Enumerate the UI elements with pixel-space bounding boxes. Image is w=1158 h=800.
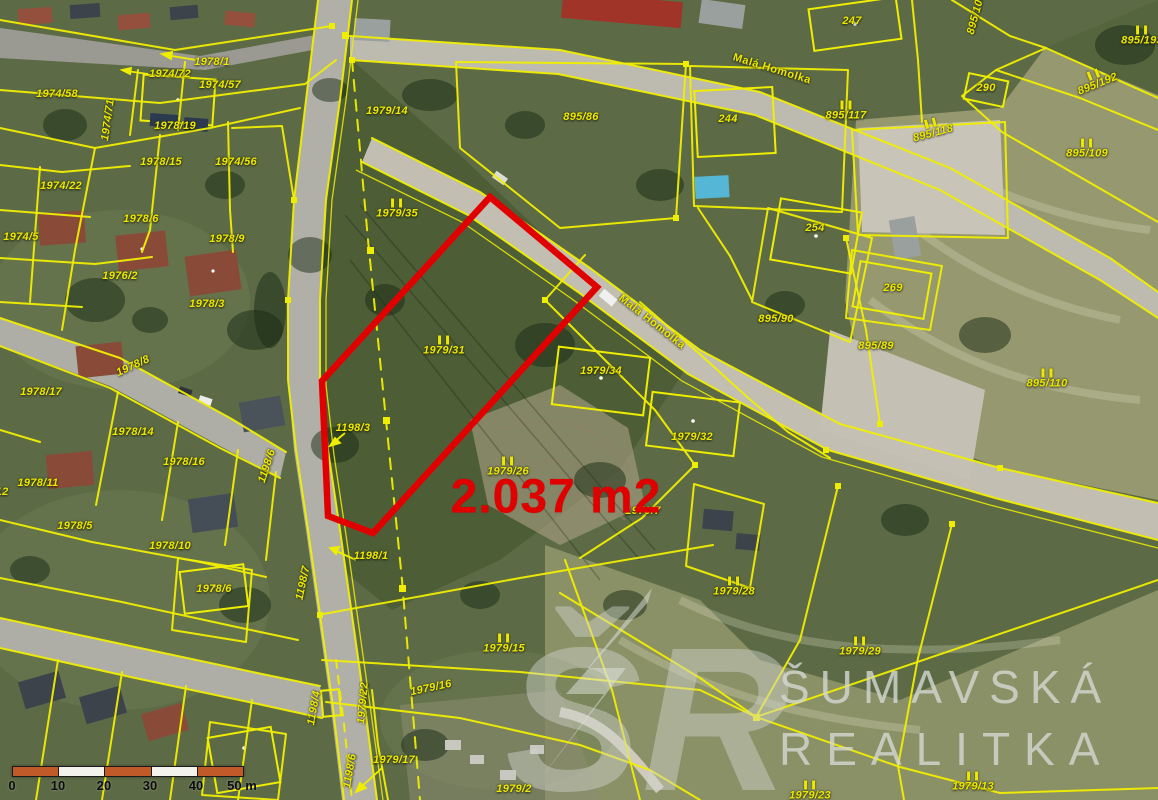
parcel-number: 244	[718, 113, 737, 125]
parcel-number: 1974/22	[40, 180, 82, 192]
parcel-number: 1978/5	[57, 520, 92, 532]
parcel-label: 1979/29	[839, 637, 881, 658]
parcel-label: 1978/14	[112, 426, 154, 438]
scale-tick-label: 40	[189, 778, 203, 793]
parcel-label: 1978/19	[154, 120, 196, 132]
parcel-number: Malá Homolka	[616, 292, 687, 351]
plot-area-label: 2.037 m2	[451, 470, 662, 525]
parcel-label: 1978/15	[140, 156, 182, 168]
parcel-label: 895/106	[965, 0, 987, 36]
parcel-number: 1979/2	[496, 783, 531, 795]
parcel-label: 1197/12	[0, 486, 9, 498]
parcel-label: 1974/5	[3, 231, 38, 243]
parcel-number: 1978/3	[189, 298, 224, 310]
parcel-number: Malá Homolka	[731, 51, 812, 86]
watermark-line1: ŠUMAVSKÁ	[779, 660, 1111, 714]
parcel-number: 1979/16	[409, 678, 452, 698]
parcel-number: 1197/12	[0, 486, 9, 498]
parcel-number: 1974/5	[3, 231, 38, 243]
parcel-number: 895/117	[825, 110, 866, 122]
parcel-label: 1198/1	[354, 550, 389, 562]
parcel-number: 1198/6	[341, 753, 359, 789]
scale-tick-label: 50 m	[227, 778, 257, 793]
parcel-label: 1978/8	[114, 353, 151, 379]
parcel-number: 1976/2	[102, 270, 137, 282]
parcel-number: 290	[976, 82, 995, 94]
scale-segment	[198, 767, 243, 776]
parcel-label: 895/109	[1066, 139, 1108, 160]
parcel-label: 1974/22	[40, 180, 82, 192]
parcel-number: 1979/35	[376, 208, 418, 220]
parcel-number: 1198/6	[256, 448, 278, 485]
parcel-label: 1978/17	[20, 386, 62, 398]
parcel-label: 1979/22	[355, 682, 371, 725]
parcel-number: 1979/34	[580, 365, 622, 377]
parcel-number: 1974/71	[99, 98, 117, 141]
parcel-label: 895/90	[758, 313, 793, 325]
parcel-number: 1198/1	[354, 550, 389, 562]
parcel-number: 1978/19	[154, 120, 196, 132]
parcel-number: 1979/29	[839, 646, 881, 658]
parcel-number: 1979/14	[366, 105, 408, 117]
watermark-line2: REALITKA	[779, 722, 1113, 776]
parcel-label: 1978/1	[194, 56, 229, 68]
parcel-label: 1978/11	[17, 477, 58, 489]
parcel-number: 895/106	[965, 0, 987, 36]
parcel-label: 895/192	[1073, 62, 1120, 97]
parcel-label: 1979/31	[423, 336, 465, 357]
parcel-label: 269	[883, 282, 902, 294]
scale-tick-label: 0	[8, 778, 15, 793]
parcel-number: 1979/31	[423, 345, 465, 357]
parcel-number: 1978/6	[123, 213, 158, 225]
parcel-number: 1974/57	[199, 79, 241, 91]
parcel-number: 1978/17	[20, 386, 62, 398]
parcel-label: 1974/58	[36, 88, 78, 100]
parcel-number: 1979/23	[789, 790, 831, 800]
parcel-label: 1979/15	[483, 634, 525, 655]
parcel-label: 1198/4	[305, 690, 323, 726]
parcel-number: 895/109	[1066, 148, 1108, 160]
parcel-number: 1978/11	[17, 477, 58, 489]
parcel-label: 1978/10	[149, 540, 191, 552]
scale-segment	[59, 767, 105, 776]
parcel-label: 1978/9	[209, 233, 244, 245]
parcel-label: 895/117	[825, 101, 866, 122]
parcel-number: 895/90	[758, 313, 793, 325]
scale-tick-label: 20	[97, 778, 111, 793]
parcel-label: 1974/56	[215, 156, 257, 168]
parcel-number: 1198/3	[336, 422, 371, 434]
parcel-number: 1974/58	[36, 88, 78, 100]
parcel-number: 1974/72	[149, 68, 191, 80]
parcel-number: 1978/9	[209, 233, 244, 245]
scale-tick-label: 30	[143, 778, 157, 793]
parcel-label: 1979/28	[713, 577, 755, 598]
cadastral-map: ŠR 1978/11974/721974/571974/581974/71197…	[0, 0, 1158, 800]
parcel-label: 1976/2	[102, 270, 137, 282]
parcel-label: 895/89	[858, 340, 893, 352]
parcel-label: 1979/14	[366, 105, 408, 117]
parcel-number: 1978/10	[149, 540, 191, 552]
parcel-label: 1978/5	[57, 520, 92, 532]
parcel-label: 895/110	[1026, 369, 1067, 390]
parcel-number: 895/86	[563, 111, 598, 123]
parcel-label: 1198/7	[294, 565, 313, 601]
parcel-label: 1198/6	[341, 753, 359, 789]
parcel-label: 1974/71	[99, 98, 117, 141]
parcel-number: 895/110	[1026, 378, 1067, 390]
parcel-number: 269	[883, 282, 902, 294]
parcel-number: 1978/15	[140, 156, 182, 168]
parcel-number: 1979/17	[373, 754, 415, 766]
parcel-number: 247	[842, 15, 861, 27]
parcel-label: 290	[976, 82, 995, 94]
parcel-number: 1978/6	[196, 583, 231, 595]
parcel-number: 1978/1	[194, 56, 229, 68]
parcel-number: 1198/4	[305, 690, 323, 726]
scale-labels: 01020304050 m	[0, 778, 300, 794]
parcel-label: 1979/2	[496, 783, 531, 795]
parcel-label: 1979/34	[580, 365, 622, 377]
parcel-label: 1198/6	[256, 448, 278, 485]
parcel-label: 1978/6	[123, 213, 158, 225]
parcel-label: 895/118	[909, 114, 954, 145]
parcel-number: 1978/16	[163, 456, 205, 468]
scale-tick-label: 10	[51, 778, 65, 793]
street-label: Malá Homolka	[731, 51, 812, 86]
parcel-label: 1979/35	[376, 199, 418, 220]
parcel-number: 1198/7	[294, 565, 313, 601]
parcel-number: 895/89	[858, 340, 893, 352]
street-label: Malá Homolka	[616, 292, 687, 351]
parcel-label: 1978/6	[196, 583, 231, 595]
parcel-number: 1974/56	[215, 156, 257, 168]
parcel-label: 1979/23	[789, 781, 831, 800]
parcel-label: 254	[805, 222, 824, 234]
parcel-label: 1198/3	[336, 422, 371, 434]
parcel-label: 895/193	[1121, 26, 1158, 47]
parcel-label: 1978/3	[189, 298, 224, 310]
scale-segment	[13, 767, 59, 776]
parcel-number: 1979/13	[952, 781, 994, 793]
parcel-number: 895/193	[1121, 35, 1158, 47]
parcel-number: 1978/14	[112, 426, 154, 438]
parcel-label: 1979/16	[409, 678, 452, 698]
parcel-number: 1979/22	[355, 682, 371, 725]
parcel-number: 1978/8	[114, 353, 151, 379]
parcel-number: 1979/32	[671, 431, 713, 443]
parcel-number: 1979/15	[483, 643, 525, 655]
parcel-label: 1974/57	[199, 79, 241, 91]
parcel-label: 1979/17	[373, 754, 415, 766]
parcel-number: 1979/28	[713, 586, 755, 598]
parcel-label: 895/86	[563, 111, 598, 123]
parcel-label: 1978/16	[163, 456, 205, 468]
parcel-number: 254	[805, 222, 824, 234]
scale-segment	[152, 767, 198, 776]
parcel-label: 244	[718, 113, 737, 125]
parcel-label: 1974/72	[149, 68, 191, 80]
parcel-label: 1979/32	[671, 431, 713, 443]
scale-bar	[12, 766, 244, 777]
parcel-label: 247	[842, 15, 861, 27]
scale-segment	[105, 767, 151, 776]
